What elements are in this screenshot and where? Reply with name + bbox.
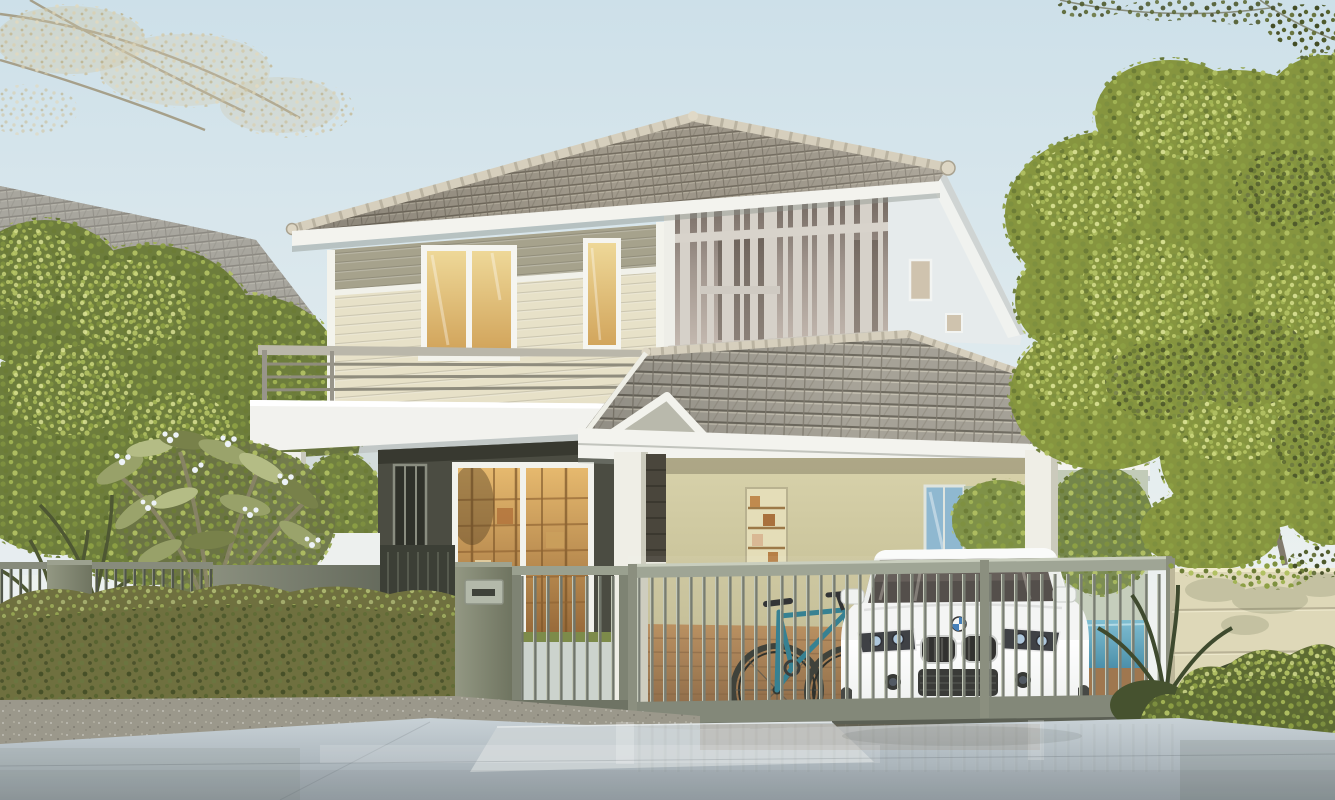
upper-tall-window <box>583 238 621 350</box>
rendering-stage: Modern two-storey suburban house with ca… <box>0 0 1335 800</box>
pedestrian-gate <box>512 566 628 714</box>
mailbox-slot <box>472 589 495 596</box>
hedge-row <box>0 584 455 705</box>
sliding-gate <box>628 556 1175 730</box>
house-rendering: Modern two-storey suburban house with ca… <box>0 0 1335 800</box>
vignette <box>0 770 1335 800</box>
mailbox-pillar <box>455 562 512 715</box>
upper-casement-window <box>418 245 520 361</box>
upper-floor-left-wall <box>327 222 664 408</box>
